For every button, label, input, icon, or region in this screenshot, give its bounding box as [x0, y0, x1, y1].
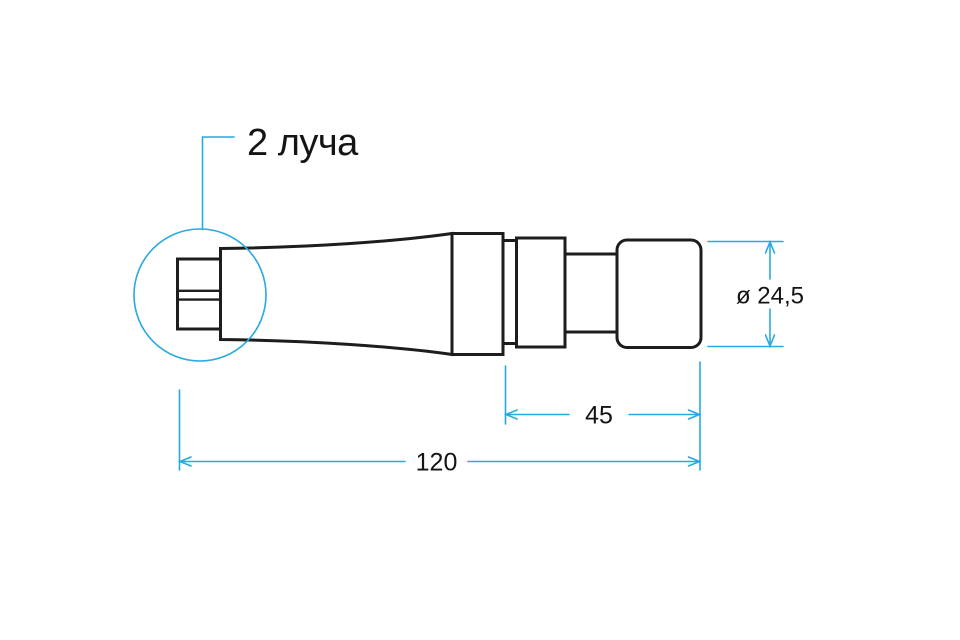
sonotrode-drawing: 2 луча ø 24,5 45 120	[0, 0, 960, 640]
horn-body	[221, 234, 453, 355]
technical-drawing-canvas: 2 луча ø 24,5 45 120	[0, 0, 960, 640]
flange-section	[452, 234, 503, 355]
neck-section	[565, 254, 617, 332]
total-length-value-label: 120	[416, 449, 458, 477]
ring-section	[517, 238, 566, 347]
diameter-value-label: ø 24,5	[736, 283, 804, 310]
end-cap	[617, 240, 701, 348]
tip-block	[178, 259, 221, 329]
callout-leader-line	[203, 137, 235, 230]
callout-label: 2 луча	[247, 122, 359, 164]
step-band	[503, 241, 517, 344]
front-length-value-label: 45	[585, 402, 613, 430]
device-outline	[178, 234, 702, 355]
